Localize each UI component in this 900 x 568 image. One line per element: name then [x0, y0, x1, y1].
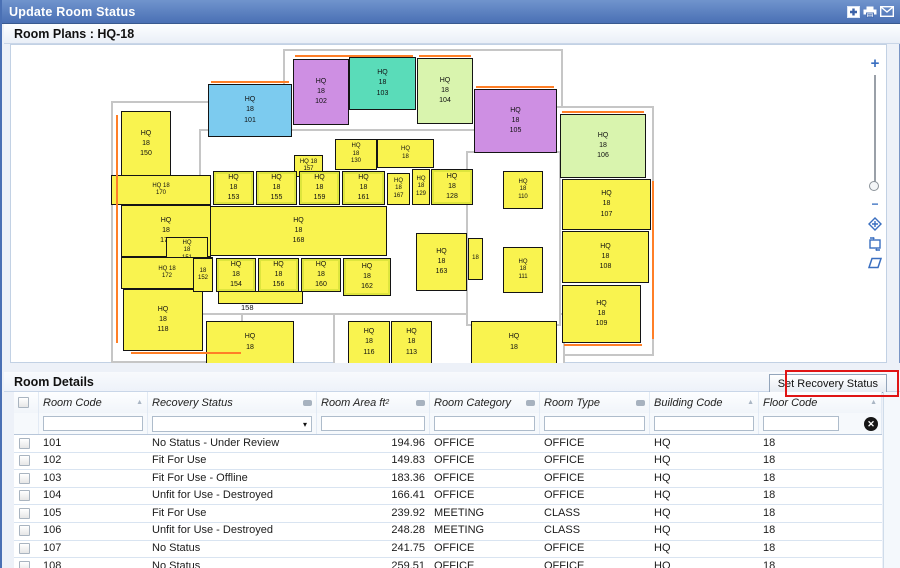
room-label: HQ: [141, 129, 152, 139]
building_code-filter-input[interactable]: [654, 416, 754, 431]
row-checkbox-cell: [14, 435, 39, 452]
cell-room_code: 107: [39, 541, 148, 558]
room-label: 162: [361, 282, 373, 292]
cell-room_code: 104: [39, 488, 148, 505]
filter-cell-room_area: [317, 413, 430, 434]
row-checkbox[interactable]: [19, 508, 30, 519]
column-label: Room Category: [434, 397, 511, 409]
room-label: 18: [317, 270, 325, 280]
row-checkbox-cell: [14, 488, 39, 505]
filter-cell-room_category: [430, 413, 540, 434]
room-label: 129: [416, 191, 426, 199]
filter-checkbox-cell: [14, 413, 39, 434]
plan-room-103[interactable]: HQ18103: [349, 57, 416, 110]
room-label: 18: [365, 337, 373, 347]
cell-floor_code: 18: [759, 558, 882, 568]
cell-floor_code: 18: [759, 541, 882, 558]
room-label: 118: [157, 325, 168, 335]
cell-room_type: OFFICE: [540, 558, 650, 568]
room-label: 18: [184, 247, 191, 255]
plan-room-104[interactable]: HQ18104: [417, 58, 473, 124]
room-label: 18: [159, 315, 167, 325]
room-label: HQ: [293, 216, 304, 226]
column-label: Room Code: [43, 397, 102, 409]
exterior-wall-accent: [562, 111, 644, 113]
room-label: 105: [510, 126, 522, 136]
cell-building_code: HQ: [650, 435, 759, 452]
room-label: HQ: [245, 332, 256, 342]
room-label: 18: [360, 183, 368, 193]
plan-room-102[interactable]: HQ18102: [293, 59, 349, 125]
room-label: 18: [402, 154, 409, 162]
filter-cell-recovery_status: ▾: [148, 413, 317, 434]
room-label: 18: [603, 199, 611, 209]
plan-room-107[interactable]: HQ18107: [562, 179, 651, 230]
room-label: 18: [273, 183, 281, 193]
room-label: 102: [315, 97, 327, 107]
room-label: HQ: [316, 260, 327, 270]
room-label: 152: [198, 275, 208, 283]
room-label: HQ: [519, 259, 528, 267]
cell-room_type: CLASS: [540, 505, 650, 522]
table-row-103[interactable]: 103Fit For Use - Offline183.36OFFICEOFFI…: [14, 470, 882, 488]
room-label: HQ: [314, 173, 325, 183]
zoom-extents-icon[interactable]: [868, 237, 882, 251]
room-label: 128: [446, 192, 458, 202]
plan-room-128[interactable]: HQ18128: [431, 169, 473, 205]
room-label: 155: [271, 193, 283, 203]
cell-recovery_status: Unfit for Use - Destroyed: [148, 523, 317, 540]
room-label: 18: [162, 226, 170, 236]
room-label: HQ: [510, 106, 521, 116]
table-row-105[interactable]: 105Fit For Use239.92MEETINGCLASSHQ18: [14, 505, 882, 523]
page-title: Update Room Status: [2, 5, 136, 19]
room-label: 104: [439, 96, 451, 106]
room-label: HQ: [598, 131, 609, 141]
plan-zoom-controls: + −: [867, 51, 883, 351]
cell-recovery_status: Fit For Use - Offline: [148, 470, 317, 487]
room-label: 18: [246, 343, 254, 353]
row-checkbox[interactable]: [19, 438, 30, 449]
room-label: 154: [230, 280, 242, 290]
cell-room_category: OFFICE: [430, 541, 540, 558]
room-label: 106: [597, 151, 609, 161]
column-header-floor_code[interactable]: Floor Code▲: [759, 392, 882, 413]
room-label: 18: [395, 185, 402, 193]
cell-room_area: 149.83: [317, 453, 430, 470]
cell-recovery_status: No Status: [148, 558, 317, 568]
exterior-wall-accent: [419, 55, 471, 57]
room-label: HQ: [377, 68, 388, 78]
cell-room_category: OFFICE: [430, 470, 540, 487]
room-label: HQ: [519, 179, 528, 187]
cell-room_type: OFFICE: [540, 470, 650, 487]
room-label: 110: [518, 194, 528, 202]
room-label: 103: [377, 89, 389, 99]
plan-room-161[interactable]: HQ18161: [342, 171, 385, 205]
title-bar-actions: [846, 5, 900, 18]
room_category-filter-input[interactable]: [434, 416, 535, 431]
room-label: 172: [162, 273, 172, 281]
plan-room-118[interactable]: HQ18118: [123, 289, 203, 351]
clear-filters-button[interactable]: ✕: [864, 417, 878, 431]
row-checkbox-cell: [14, 541, 39, 558]
sort-asc-icon[interactable]: ▲: [747, 399, 754, 406]
room-label: 160: [315, 280, 327, 290]
row-checkbox[interactable]: [19, 561, 30, 568]
room-details-header: Room Details: [4, 372, 900, 392]
plan-room-105[interactable]: HQ18105: [474, 89, 557, 153]
cell-room_type: OFFICE: [540, 453, 650, 470]
room-label: 18: [200, 268, 207, 276]
room-label: 18: [230, 183, 238, 193]
plan-room-168[interactable]: HQ18168: [210, 206, 387, 256]
room-label: 18: [418, 183, 425, 191]
room-label: 116: [363, 348, 374, 358]
column-label: Recovery Status: [152, 397, 233, 409]
column-label: Room Type: [544, 397, 600, 409]
title-bar: Update Room Status: [2, 0, 900, 24]
room-label: 18: [353, 151, 360, 159]
room-label: HQ: [273, 260, 284, 270]
room-label: HQ: [596, 299, 607, 309]
room-label: HQ 18: [300, 159, 317, 167]
room-label: HQ: [401, 146, 410, 154]
cell-room_area: 166.41: [317, 488, 430, 505]
room-label: 18: [598, 309, 606, 319]
plan-room-18[interactable]: 18: [468, 238, 483, 280]
filter-cell-building_code: [650, 413, 759, 434]
cell-room_area: 239.92: [317, 505, 430, 522]
room-label: 168: [293, 236, 305, 246]
zoom-slider-track[interactable]: [874, 75, 876, 185]
cell-room_type: OFFICE: [540, 541, 650, 558]
row-checkbox-cell: [14, 470, 39, 487]
column-label: Building Code: [654, 397, 723, 409]
plan-room-153[interactable]: HQ18153: [213, 171, 254, 205]
plan-room-113[interactable]: HQ18113: [391, 321, 432, 364]
row-checkbox[interactable]: [19, 543, 30, 554]
filter-icon[interactable]: [303, 400, 312, 406]
pan-tool-icon[interactable]: [868, 217, 882, 231]
room-label: 18: [316, 183, 324, 193]
column-header-recovery_status[interactable]: Recovery Status: [148, 392, 317, 413]
zoom-out-button[interactable]: −: [867, 197, 883, 211]
room_code-filter-input[interactable]: [43, 416, 143, 431]
room-label: 18: [275, 270, 283, 280]
column-label: Room Area ft: [321, 397, 385, 409]
row-checkbox-cell: [14, 558, 39, 568]
add-window-icon[interactable]: [846, 5, 860, 18]
cell-recovery_status: No Status: [148, 541, 317, 558]
cell-floor_code: 18: [759, 488, 882, 505]
app-window: Update Room Status Room Plans : HQ-18 HQ…: [0, 0, 900, 568]
room-label: HQ: [601, 189, 612, 199]
plan-room-18[interactable]: HQ18: [377, 139, 434, 168]
plan-room-162[interactable]: HQ18162: [343, 258, 391, 296]
plan-room-18[interactable]: HQ18: [206, 321, 294, 364]
cell-room_code: 108: [39, 558, 148, 568]
filter-cell-floor_code: ✕: [759, 413, 882, 434]
floor_code-filter-input[interactable]: [763, 416, 839, 431]
column-label-sup: 2: [385, 399, 389, 406]
room-label: HQ: [417, 176, 426, 184]
cell-room_area: 194.96: [317, 435, 430, 452]
cell-room_category: OFFICE: [430, 435, 540, 452]
room-label: HQ: [161, 216, 172, 226]
plan-room-110[interactable]: HQ18110: [503, 171, 543, 209]
room-label: 167: [393, 193, 403, 201]
room-label: 101: [244, 116, 256, 126]
plan-room-167[interactable]: HQ18167: [387, 173, 410, 205]
table-filter-row: ▾✕: [14, 413, 882, 435]
room_area-filter-input[interactable]: [321, 416, 425, 431]
cell-room_area: 183.36: [317, 470, 430, 487]
cell-room_type: OFFICE: [540, 488, 650, 505]
header-checkbox-cell: [14, 392, 39, 413]
plan-room-109[interactable]: HQ18109: [562, 285, 641, 343]
room-label: 153: [228, 193, 240, 203]
cell-floor_code: 18: [759, 470, 882, 487]
column-header-room_type[interactable]: Room Type: [540, 392, 650, 413]
cell-building_code: HQ: [650, 558, 759, 568]
plan-room-159[interactable]: HQ18159: [299, 171, 340, 205]
room-label: 18: [441, 86, 449, 96]
plan-room-160[interactable]: HQ18160: [301, 258, 341, 292]
row-checkbox[interactable]: [19, 455, 30, 466]
row-checkbox[interactable]: [19, 490, 30, 501]
room-label: HQ: [245, 95, 256, 105]
room-label: 108: [600, 262, 612, 272]
plan-room-18[interactable]: HQ18: [471, 321, 557, 364]
room-label: 18: [363, 272, 371, 282]
plan-room-101[interactable]: HQ18101: [208, 84, 292, 137]
column-label: Floor Code: [763, 397, 817, 409]
room-label: 18: [246, 105, 254, 115]
table-body: 101No Status - Under Review194.96OFFICEO…: [14, 435, 882, 568]
cell-building_code: HQ: [650, 505, 759, 522]
table-row-102[interactable]: 102Fit For Use149.83OFFICEOFFICEHQ18: [14, 453, 882, 471]
room-label: HQ 18: [152, 183, 169, 191]
room-label: HQ: [364, 327, 375, 337]
plan-room-150[interactable]: HQ18150: [121, 111, 171, 177]
room-label: HQ: [436, 247, 447, 257]
cell-room_area: 248.28: [317, 523, 430, 540]
cell-floor_code: 18: [759, 435, 882, 452]
plan-room-170[interactable]: HQ 18170: [111, 175, 211, 205]
filter-icon[interactable]: [636, 400, 645, 406]
room-label: HQ: [509, 332, 520, 342]
room-label: HQ: [352, 143, 361, 151]
cell-room_code: 103: [39, 470, 148, 487]
cell-floor_code: 18: [759, 453, 882, 470]
room-label: HQ: [231, 260, 242, 270]
cell-building_code: HQ: [650, 541, 759, 558]
cell-room_area: 259.51: [317, 558, 430, 568]
dropdown-arrow-icon: ▾: [303, 420, 307, 429]
room-label: HQ: [183, 240, 192, 248]
table-row-104[interactable]: 104Unfit for Use - Destroyed166.41OFFICE…: [14, 488, 882, 506]
cell-room_code: 106: [39, 523, 148, 540]
room-label: HQ: [440, 76, 451, 86]
room-label: 159: [314, 193, 326, 203]
room-label: HQ 18: [158, 266, 175, 274]
exterior-wall-accent: [652, 181, 654, 339]
plan-room-130[interactable]: HQ18130: [335, 139, 377, 170]
row-checkbox[interactable]: [19, 525, 30, 536]
table-row-101[interactable]: 101No Status - Under Review194.96OFFICEO…: [14, 435, 882, 453]
room-label: HQ: [394, 178, 403, 186]
room-label: 150: [140, 149, 152, 159]
room-label: HQ: [362, 262, 373, 272]
plan-room-154[interactable]: HQ18154: [216, 258, 256, 292]
cell-recovery_status: Unfit for Use - Destroyed: [148, 488, 317, 505]
cell-room_area: 241.75: [317, 541, 430, 558]
exterior-wall-accent: [131, 352, 241, 354]
room-label: 18: [438, 257, 446, 267]
mail-icon[interactable]: [880, 5, 894, 18]
cell-room_code: 105: [39, 505, 148, 522]
cell-room_code: 101: [39, 435, 148, 452]
table-header-row: Room Code▲Recovery StatusRoom Area ft2Ro…: [14, 392, 882, 413]
room-label: HQ: [271, 173, 282, 183]
floor-plan[interactable]: HQ18150HQ18101HQ18102HQ18103HQ18104HQ181…: [11, 45, 886, 362]
exterior-wall-accent: [295, 55, 413, 57]
room-label: 18: [520, 266, 527, 274]
cell-room_code: 102: [39, 453, 148, 470]
room-label: 18: [379, 78, 387, 88]
sort-asc-icon[interactable]: ▲: [870, 399, 877, 406]
exterior-wall-accent: [116, 115, 118, 343]
table-row-107[interactable]: 107No Status241.75OFFICEOFFICEHQ18: [14, 541, 882, 559]
plan-room[interactable]: [218, 291, 303, 304]
room-label: 109: [596, 319, 608, 329]
table-row-106[interactable]: 106Unfit for Use - Destroyed248.28MEETIN…: [14, 523, 882, 541]
column-header-room_category[interactable]: Room Category: [430, 392, 540, 413]
room-label: 18: [448, 182, 456, 192]
room-label: 18: [142, 139, 150, 149]
room-label: 18: [295, 226, 303, 236]
room-label: HQ: [600, 242, 611, 252]
cell-room_type: OFFICE: [540, 435, 650, 452]
recovery-status-filter-select[interactable]: ▾: [152, 416, 312, 432]
column-header-room_area[interactable]: Room Area ft2: [317, 392, 430, 413]
table-row-108[interactable]: 108No Status259.51OFFICEOFFICEHQ18: [14, 558, 882, 568]
select-all-checkbox[interactable]: [18, 397, 29, 408]
cell-building_code: HQ: [650, 523, 759, 540]
sort-asc-icon[interactable]: ▲: [136, 399, 143, 406]
room-label: 163: [436, 267, 448, 277]
row-checkbox-cell: [14, 453, 39, 470]
plan-room-108[interactable]: HQ18108: [562, 231, 649, 283]
room-label: 18: [317, 87, 325, 97]
column-header-building_code[interactable]: Building Code▲: [650, 392, 759, 413]
room-label: 18: [472, 255, 479, 263]
room_type-filter-input[interactable]: [544, 416, 645, 431]
room-label: HQ: [228, 173, 239, 183]
room-label: 18: [510, 343, 518, 353]
row-checkbox[interactable]: [19, 473, 30, 484]
room-label: 18: [599, 141, 607, 151]
select-area-icon[interactable]: [868, 257, 882, 269]
plan-room-129[interactable]: HQ18129: [412, 169, 430, 205]
cell-room_category: MEETING: [430, 523, 540, 540]
room-label: HQ: [358, 173, 369, 183]
cell-room_category: OFFICE: [430, 453, 540, 470]
cell-building_code: HQ: [650, 453, 759, 470]
plan-room-116[interactable]: HQ18116: [348, 321, 390, 364]
exterior-wall-accent: [211, 81, 289, 83]
room-label: HQ: [406, 327, 417, 337]
row-checkbox-cell: [14, 505, 39, 522]
cell-room_type: CLASS: [540, 523, 650, 540]
cell-recovery_status: Fit For Use: [148, 505, 317, 522]
plan-room-163[interactable]: HQ18163: [416, 233, 467, 291]
set-recovery-status-button[interactable]: Set Recovery Status: [769, 374, 887, 393]
plan-room-106[interactable]: HQ18106: [560, 114, 646, 178]
filter-icon[interactable]: [416, 400, 425, 406]
room-label: 107: [601, 210, 613, 220]
cell-room_category: OFFICE: [430, 558, 540, 568]
room-details-table: Room Code▲Recovery StatusRoom Area ft2Ro…: [14, 392, 882, 435]
room-label: 111: [518, 274, 527, 282]
exterior-wall-accent: [476, 86, 554, 88]
room-label: HQ: [158, 305, 169, 315]
room-label: 156: [273, 280, 285, 290]
cell-floor_code: 18: [759, 505, 882, 522]
cell-room_category: OFFICE: [430, 488, 540, 505]
room-label: 18: [232, 270, 240, 280]
cell-building_code: HQ: [650, 470, 759, 487]
cell-floor_code: 18: [759, 523, 882, 540]
cell-recovery_status: No Status - Under Review: [148, 435, 317, 452]
panel-gap: [4, 363, 900, 372]
filter-icon[interactable]: [526, 400, 535, 406]
plan-room-152[interactable]: 18152: [193, 258, 213, 292]
room-label: 18: [408, 337, 416, 347]
cell-building_code: HQ: [650, 488, 759, 505]
floor-plan-panel: HQ18150HQ18101HQ18102HQ18103HQ18104HQ181…: [10, 44, 887, 363]
room-label: HQ: [316, 77, 327, 87]
room-plans-header: Room Plans : HQ-18: [4, 24, 900, 44]
room-label: 18: [520, 186, 527, 194]
column-header-room_code[interactable]: Room Code▲: [39, 392, 148, 413]
row-checkbox-cell: [14, 523, 39, 540]
exterior-wall-accent: [564, 344, 642, 346]
plan-room-155[interactable]: HQ18155: [256, 171, 297, 205]
table-scrollbar[interactable]: [883, 392, 900, 568]
plan-room-111[interactable]: HQ18111: [503, 247, 543, 293]
print-icon[interactable]: [863, 5, 877, 18]
zoom-in-button[interactable]: +: [867, 55, 883, 72]
room-label: HQ: [447, 172, 458, 182]
room-label: 113: [406, 348, 417, 358]
plan-text-label: 158: [241, 303, 254, 312]
room-label: 130: [351, 158, 361, 166]
filter-cell-room_code: [39, 413, 148, 434]
plan-room-156[interactable]: HQ18156: [258, 258, 299, 292]
cell-recovery_status: Fit For Use: [148, 453, 317, 470]
zoom-slider-handle[interactable]: [869, 181, 879, 191]
room-label: 18: [602, 252, 610, 262]
cell-room_category: MEETING: [430, 505, 540, 522]
room-label: 170: [156, 190, 166, 198]
room-label: 161: [358, 193, 370, 203]
room-label: 18: [512, 116, 520, 126]
filter-cell-room_type: [540, 413, 650, 434]
